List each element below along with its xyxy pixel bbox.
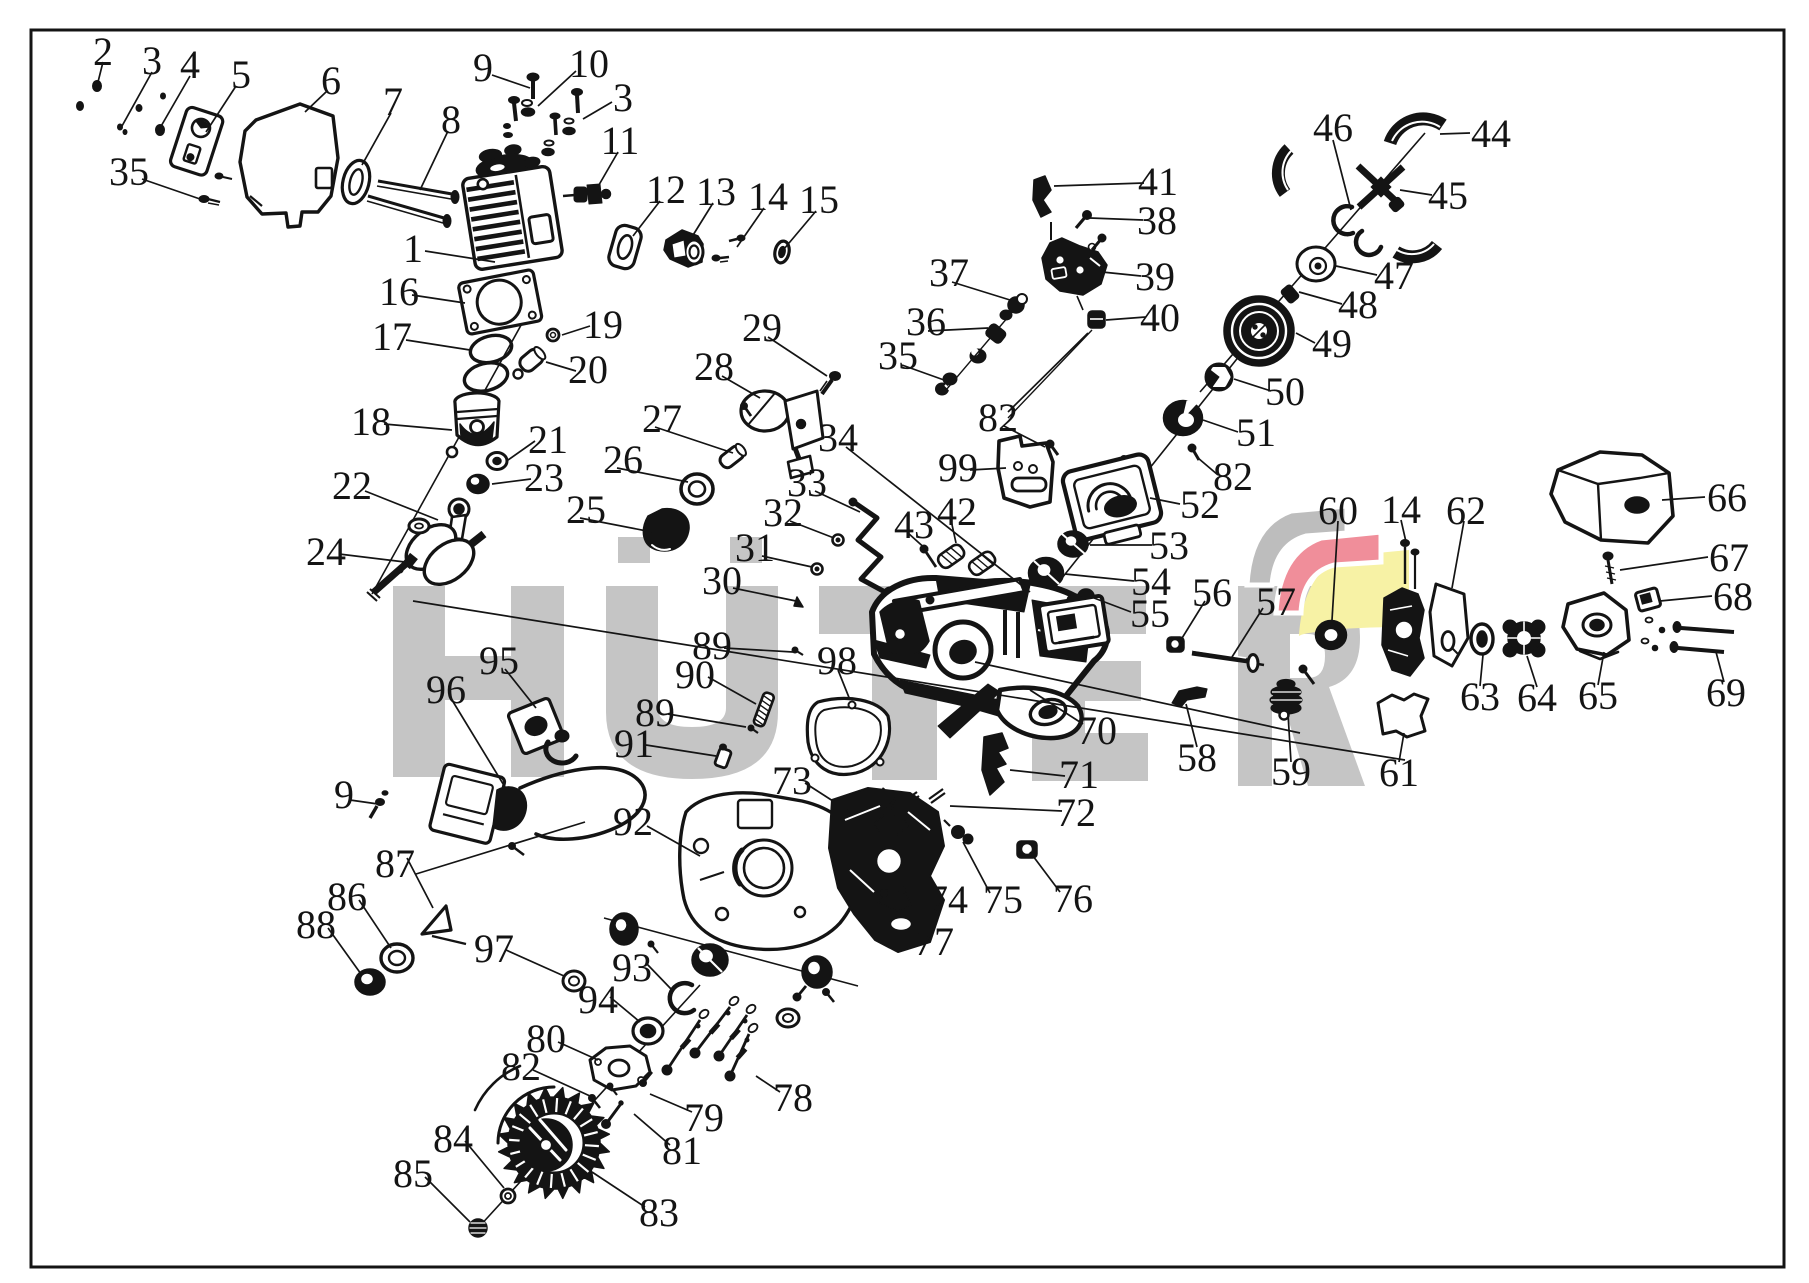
- svg-text:7: 7: [383, 79, 403, 124]
- svg-text:10: 10: [569, 41, 609, 86]
- svg-text:34: 34: [818, 415, 858, 460]
- svg-text:23: 23: [524, 455, 564, 500]
- svg-text:81: 81: [662, 1128, 702, 1173]
- svg-text:57: 57: [1256, 579, 1296, 624]
- svg-text:72: 72: [1056, 790, 1096, 835]
- svg-text:60: 60: [1318, 488, 1358, 533]
- svg-text:61: 61: [1379, 750, 1419, 795]
- svg-text:77: 77: [914, 919, 954, 964]
- svg-text:90: 90: [675, 652, 715, 697]
- svg-text:49: 49: [1312, 321, 1352, 366]
- svg-text:50: 50: [1265, 369, 1305, 414]
- svg-text:62: 62: [1446, 488, 1486, 533]
- svg-text:98: 98: [817, 638, 857, 683]
- svg-text:5: 5: [231, 52, 251, 97]
- svg-text:4: 4: [180, 42, 200, 87]
- svg-text:70: 70: [1077, 708, 1117, 753]
- svg-text:63: 63: [1460, 674, 1500, 719]
- svg-text:17: 17: [372, 314, 412, 359]
- svg-text:27: 27: [642, 396, 682, 441]
- svg-text:13: 13: [696, 169, 736, 214]
- svg-text:16: 16: [379, 269, 419, 314]
- svg-text:9: 9: [473, 45, 493, 90]
- svg-text:91: 91: [614, 721, 654, 766]
- svg-text:76: 76: [1053, 876, 1093, 921]
- svg-text:1: 1: [403, 226, 423, 271]
- svg-text:83: 83: [639, 1190, 679, 1235]
- svg-text:78: 78: [773, 1075, 813, 1120]
- svg-text:73: 73: [772, 758, 812, 803]
- svg-text:94: 94: [578, 977, 618, 1022]
- svg-text:82: 82: [501, 1044, 541, 1089]
- svg-text:84: 84: [433, 1116, 473, 1161]
- svg-text:52: 52: [1180, 482, 1220, 527]
- svg-text:85: 85: [393, 1151, 433, 1196]
- svg-text:58: 58: [1177, 735, 1217, 780]
- svg-text:56: 56: [1192, 570, 1232, 615]
- svg-text:46: 46: [1313, 105, 1353, 150]
- svg-text:3: 3: [613, 75, 633, 120]
- svg-text:55: 55: [1130, 591, 1170, 636]
- svg-text:75: 75: [983, 877, 1023, 922]
- svg-text:59: 59: [1271, 749, 1311, 794]
- svg-text:40: 40: [1140, 295, 1180, 340]
- svg-text:35: 35: [109, 149, 149, 194]
- svg-text:45: 45: [1428, 173, 1468, 218]
- svg-text:20: 20: [568, 347, 608, 392]
- svg-text:30: 30: [702, 558, 742, 603]
- svg-text:82: 82: [978, 395, 1018, 440]
- svg-text:2: 2: [93, 29, 113, 74]
- svg-text:14: 14: [748, 174, 788, 219]
- svg-text:18: 18: [351, 399, 391, 444]
- svg-text:24: 24: [306, 529, 346, 574]
- svg-text:93: 93: [612, 945, 652, 990]
- svg-text:88: 88: [296, 902, 336, 947]
- svg-text:22: 22: [332, 463, 372, 508]
- svg-text:25: 25: [566, 487, 606, 532]
- svg-text:96: 96: [426, 667, 466, 712]
- svg-text:11: 11: [601, 118, 640, 163]
- svg-text:35: 35: [878, 333, 918, 378]
- svg-text:64: 64: [1517, 675, 1557, 720]
- svg-text:43: 43: [894, 502, 934, 547]
- svg-text:65: 65: [1578, 673, 1618, 718]
- svg-text:38: 38: [1137, 198, 1177, 243]
- svg-text:44: 44: [1471, 111, 1511, 156]
- svg-text:9: 9: [334, 772, 354, 817]
- svg-text:47: 47: [1374, 253, 1414, 298]
- svg-text:8: 8: [441, 97, 461, 142]
- svg-text:3: 3: [142, 38, 162, 83]
- svg-text:68: 68: [1713, 574, 1753, 619]
- svg-text:97: 97: [474, 926, 514, 971]
- svg-text:37: 37: [929, 250, 969, 295]
- svg-text:28: 28: [694, 344, 734, 389]
- svg-text:14: 14: [1381, 487, 1421, 532]
- svg-text:74: 74: [928, 877, 968, 922]
- svg-text:87: 87: [375, 841, 415, 886]
- svg-text:92: 92: [613, 799, 653, 844]
- svg-text:66: 66: [1707, 475, 1747, 520]
- svg-text:69: 69: [1706, 670, 1746, 715]
- svg-text:42: 42: [937, 489, 977, 534]
- svg-text:15: 15: [799, 177, 839, 222]
- svg-text:12: 12: [646, 167, 686, 212]
- svg-text:51: 51: [1236, 410, 1276, 455]
- svg-text:29: 29: [742, 305, 782, 350]
- svg-text:26: 26: [603, 437, 643, 482]
- svg-text:95: 95: [479, 638, 519, 683]
- svg-text:19: 19: [583, 302, 623, 347]
- svg-text:39: 39: [1135, 254, 1175, 299]
- svg-text:99: 99: [938, 445, 978, 490]
- svg-text:6: 6: [321, 58, 341, 103]
